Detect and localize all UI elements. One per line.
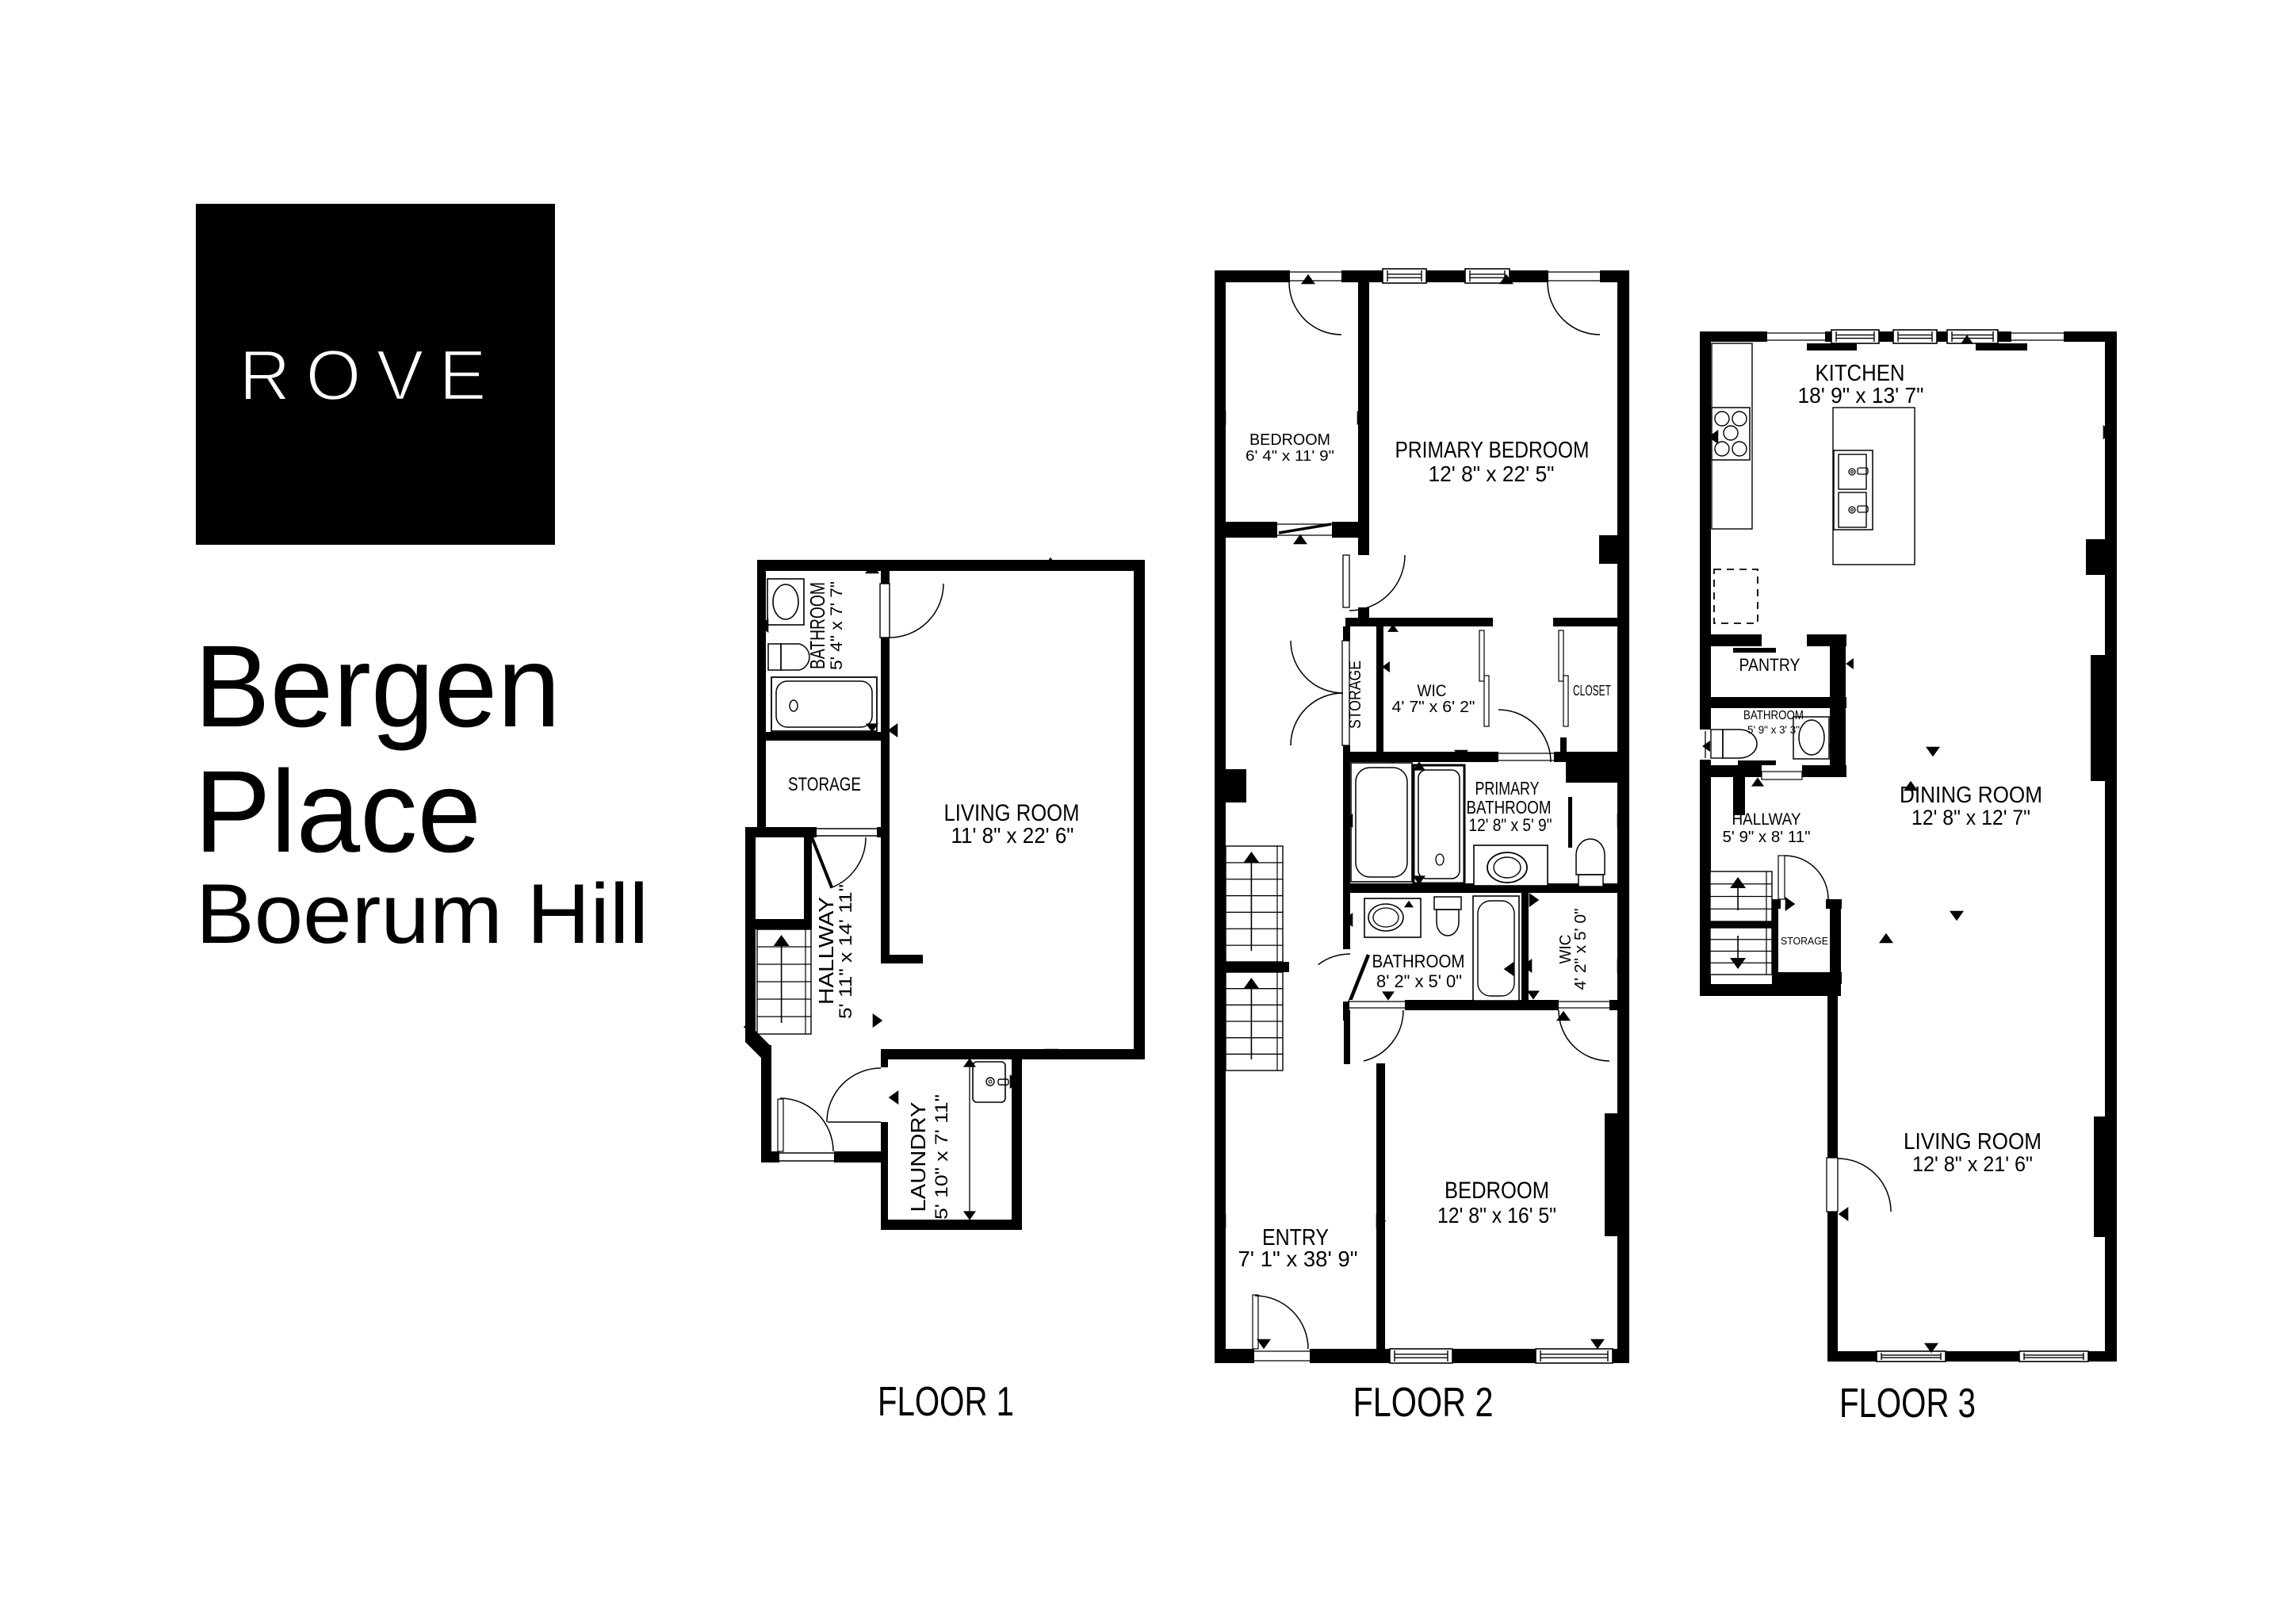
svg-text:DINING ROOM: DINING ROOM xyxy=(1900,783,2042,808)
svg-text:LIVING ROOM: LIVING ROOM xyxy=(1904,1129,2042,1155)
svg-text:BEDROOM: BEDROOM xyxy=(1249,431,1330,449)
svg-text:12' 8" x 21' 6": 12' 8" x 21' 6" xyxy=(1912,1152,2033,1176)
svg-text:ROVE: ROVE xyxy=(239,336,501,416)
svg-text:LAUNDRY: LAUNDRY xyxy=(906,1102,930,1212)
svg-text:BATHROOM: BATHROOM xyxy=(1743,709,1804,722)
svg-text:PRIMARY: PRIMARY xyxy=(1475,778,1540,799)
svg-text:PRIMARY BEDROOM: PRIMARY BEDROOM xyxy=(1395,438,1590,463)
svg-text:FLOOR 2: FLOOR 2 xyxy=(1353,1380,1494,1426)
svg-text:HALLWAY: HALLWAY xyxy=(814,897,838,1005)
svg-text:5' 9" x 3' 3": 5' 9" x 3' 3" xyxy=(1747,723,1800,736)
svg-text:Place: Place xyxy=(194,747,481,877)
svg-text:STORAGE: STORAGE xyxy=(788,774,861,795)
svg-text:BATHROOM: BATHROOM xyxy=(1372,951,1465,971)
svg-text:18' 9" x 13' 7": 18' 9" x 13' 7" xyxy=(1798,383,1924,408)
svg-text:12' 8" x 22' 5": 12' 8" x 22' 5" xyxy=(1429,462,1555,486)
svg-text:FLOOR 3: FLOOR 3 xyxy=(1839,1381,1976,1427)
svg-text:5' 10" x 7' 11": 5' 10" x 7' 11" xyxy=(932,1094,951,1220)
svg-text:12' 8" x 12' 7": 12' 8" x 12' 7" xyxy=(1911,806,2030,829)
svg-text:Bergen: Bergen xyxy=(194,622,561,752)
svg-text:11' 8" x 22' 6": 11' 8" x 22' 6" xyxy=(951,823,1074,848)
svg-text:12' 8" x 16' 5": 12' 8" x 16' 5" xyxy=(1437,1203,1556,1228)
svg-text:5' 4" x 7' 7": 5' 4" x 7' 7" xyxy=(828,581,846,670)
svg-text:WIC: WIC xyxy=(1418,682,1447,700)
svg-text:7' 1" x 38' 9": 7' 1" x 38' 9" xyxy=(1238,1247,1358,1271)
svg-text:5' 9" x 8' 11": 5' 9" x 8' 11" xyxy=(1723,829,1811,846)
svg-text:BATHROOM: BATHROOM xyxy=(806,582,829,669)
svg-text:STORAGE: STORAGE xyxy=(1346,661,1364,729)
svg-text:BEDROOM: BEDROOM xyxy=(1445,1178,1549,1204)
svg-text:4' 7" x 6' 2": 4' 7" x 6' 2" xyxy=(1392,699,1475,716)
svg-text:5' 11" x 14' 11": 5' 11" x 14' 11" xyxy=(836,884,855,1019)
svg-text:8' 2" x 5' 0": 8' 2" x 5' 0" xyxy=(1376,971,1462,991)
svg-text:HALLWAY: HALLWAY xyxy=(1732,810,1801,829)
svg-text:12' 8" x 5' 9": 12' 8" x 5' 9" xyxy=(1469,815,1552,835)
svg-text:PANTRY: PANTRY xyxy=(1739,655,1800,675)
svg-text:STORAGE: STORAGE xyxy=(1781,935,1828,947)
svg-text:6' 4" x 11' 9": 6' 4" x 11' 9" xyxy=(1246,447,1334,464)
svg-text:FLOOR 1: FLOOR 1 xyxy=(878,1379,1014,1425)
svg-text:4' 2" x 5' 0": 4' 2" x 5' 0" xyxy=(1572,909,1590,990)
svg-text:CLOSET: CLOSET xyxy=(1573,683,1611,699)
svg-text:Boerum Hill: Boerum Hill xyxy=(196,866,649,961)
